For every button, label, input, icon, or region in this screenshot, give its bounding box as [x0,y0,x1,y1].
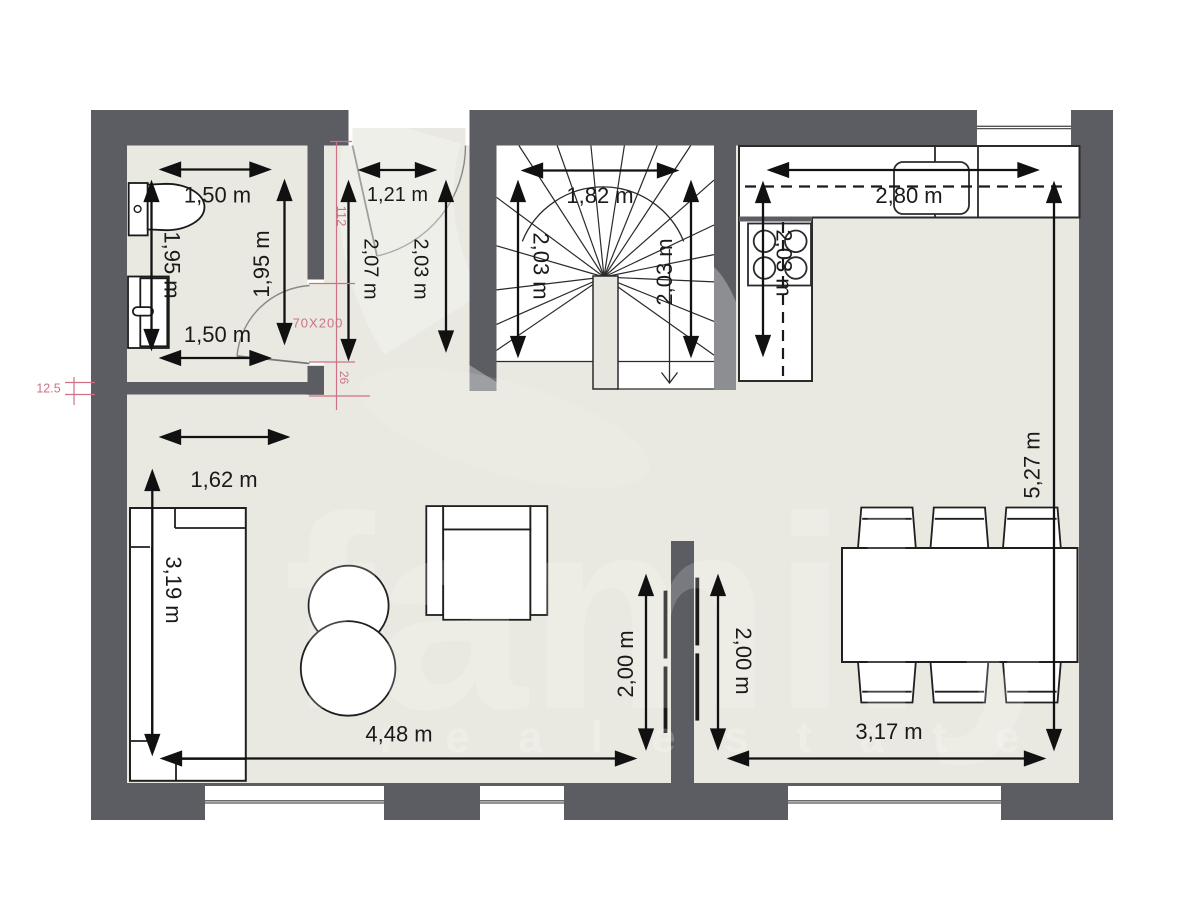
svg-text:3,17 m: 3,17 m [855,719,922,744]
svg-text:2,07 m: 2,07 m [359,238,381,299]
svg-text:12.5: 12.5 [36,382,60,396]
svg-text:2,03 m: 2,03 m [652,238,677,305]
svg-text:1,62 m: 1,62 m [190,467,257,492]
svg-text:1,21 m: 1,21 m [367,184,428,206]
svg-text:2,03 m: 2,03 m [529,232,554,299]
svg-text:1,50 m: 1,50 m [184,183,251,208]
svg-text:1,50 m: 1,50 m [184,322,251,347]
svg-text:2,03 m: 2,03 m [409,238,431,299]
svg-text:2,00 m: 2,00 m [613,630,638,697]
svg-text:r e a l e s t a t e: r e a l e s t a t e [380,713,1038,762]
svg-text:3,19 m: 3,19 m [161,556,186,623]
svg-text:4,48 m: 4,48 m [365,722,432,747]
svg-text:1,95 m: 1,95 m [249,230,274,297]
svg-text:1,82 m: 1,82 m [566,183,633,208]
svg-text:70X200: 70X200 [293,316,344,331]
svg-text:2,00 m: 2,00 m [731,627,756,694]
svg-text:26: 26 [337,371,351,385]
svg-text:1,95 m: 1,95 m [160,231,185,298]
svg-text:112: 112 [334,206,349,227]
svg-text:2,80 m: 2,80 m [875,183,942,208]
svg-text:2,03 m: 2,03 m [772,229,797,296]
svg-text:5,27 m: 5,27 m [1020,431,1045,498]
